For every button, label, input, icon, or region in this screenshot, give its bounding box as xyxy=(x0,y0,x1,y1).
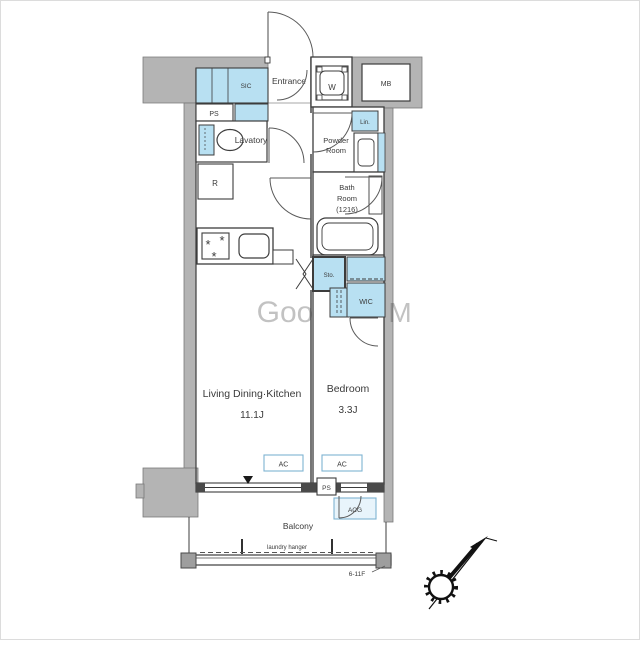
wall-bottom-left-block xyxy=(143,468,198,517)
sic-label: SIC xyxy=(241,83,252,90)
fridge-label: R xyxy=(212,179,218,188)
floorplan-drawing: MB SIC PS Entrance Lavatory xyxy=(0,0,640,640)
powder-room-label-2: Room xyxy=(326,146,346,155)
wall-left xyxy=(184,103,196,470)
wall-stub xyxy=(301,483,317,492)
toilet-tank-icon xyxy=(199,125,214,155)
vanity-basin-icon xyxy=(358,139,374,166)
fridge-space: R xyxy=(198,164,233,199)
watermark-text-1: Goo xyxy=(257,296,314,329)
wic-shelf xyxy=(347,257,385,281)
bath-room: Bath Room (1216) xyxy=(313,172,384,257)
balcony-label: Balcony xyxy=(283,521,314,531)
bathtub-inner-icon xyxy=(322,223,373,250)
lavatory-label: Lavatory xyxy=(235,135,268,145)
powder-room: Lin. Powder Room xyxy=(313,107,385,172)
front-door-arc-icon xyxy=(268,12,313,57)
vanity-side-panel xyxy=(378,133,385,172)
bifold-door-icon xyxy=(303,259,313,289)
meter-box-label: MB xyxy=(381,81,392,88)
powder-room-label-1: Powder xyxy=(323,136,349,145)
bifold-door-icon xyxy=(296,259,306,289)
storage-wic: Sto. WIC xyxy=(296,255,385,484)
hall-ldk-door xyxy=(270,178,311,219)
kitchen: * * * xyxy=(197,228,293,264)
bath-label-2: Room xyxy=(337,194,357,203)
bath-counter xyxy=(369,176,382,214)
floor-range-label: 6-11F xyxy=(349,571,366,578)
ldk-door-arc-icon xyxy=(270,178,311,219)
wic-side-shelf xyxy=(330,288,347,317)
laundry-hanger-label: laundry hanger xyxy=(267,545,307,551)
wall-bottom-left-tab xyxy=(136,484,144,498)
balcony-rail xyxy=(182,555,391,565)
watermark-text-2: M xyxy=(388,297,411,328)
kitchen-counter-step xyxy=(273,250,293,264)
ps-bottom-label: PS xyxy=(322,485,331,492)
linen-label: Lin. xyxy=(360,120,370,126)
wic-label: WIC xyxy=(359,299,373,306)
bedroom-name-label: Bedroom xyxy=(327,383,370,395)
stove-burner-icon: * xyxy=(205,237,210,252)
washer-label: W xyxy=(328,83,336,92)
sic-box xyxy=(196,68,268,103)
compass-arrowhead xyxy=(470,536,488,550)
compass-ring xyxy=(429,575,453,599)
sink-icon xyxy=(239,234,269,258)
compass-needle xyxy=(449,544,478,578)
entrance-area: Entrance xyxy=(265,12,316,100)
entrance-label: Entrance xyxy=(272,76,306,86)
washer-corner xyxy=(317,67,322,72)
door-jamb-left xyxy=(265,57,270,63)
washer-corner xyxy=(342,67,347,72)
stove-burner-icon: * xyxy=(219,233,224,248)
ac-living-label: AC xyxy=(279,462,289,469)
washer-corner xyxy=(317,95,322,100)
floorplan-page: MB SIC PS Entrance Lavatory xyxy=(0,0,640,640)
wall-stub xyxy=(336,483,341,492)
ac-bedroom-label: AC xyxy=(337,462,347,469)
ps-top-label: PS xyxy=(209,111,219,118)
rail-post-left xyxy=(181,553,196,568)
stove-burner-icon: * xyxy=(211,249,216,264)
compass-icon xyxy=(427,536,498,609)
compass-arrow-bar xyxy=(486,538,497,541)
wall-stub xyxy=(196,483,205,492)
ldk-name-label: Living Dining·Kitchen xyxy=(203,388,302,400)
wall-stub xyxy=(367,483,384,492)
lavatory-room: Lavatory xyxy=(196,121,304,163)
sic-lower-shelf xyxy=(235,104,268,121)
bedroom-size-label: 3.3J xyxy=(339,405,358,416)
rail-post-right xyxy=(376,553,391,568)
shoe-closet: SIC PS xyxy=(196,68,268,121)
meter-box: MB xyxy=(362,64,410,101)
lavatory-door-arc-icon xyxy=(269,128,304,163)
balcony: Balcony laundry hanger 6-11F xyxy=(181,517,391,578)
washer-closet: W xyxy=(311,57,352,107)
washer-corner xyxy=(342,95,347,100)
bath-label-1: Bath xyxy=(339,183,354,192)
storage-label: Sto. xyxy=(324,273,335,279)
ldk-size-label: 11.1J xyxy=(240,410,264,421)
